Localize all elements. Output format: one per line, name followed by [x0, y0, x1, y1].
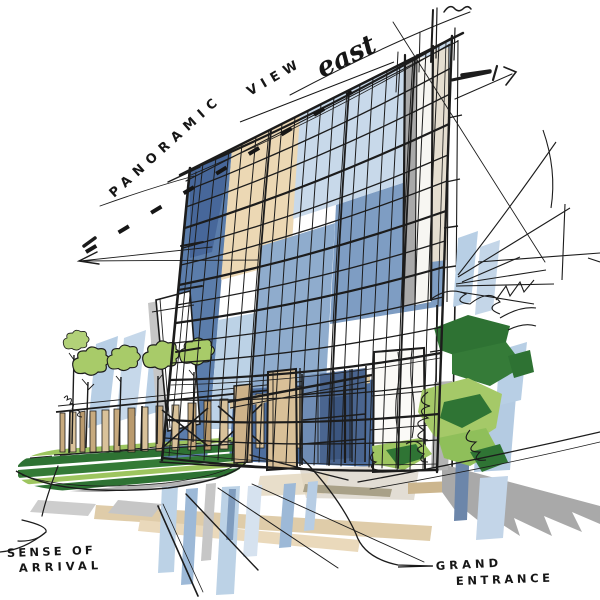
- architectural-sketch: PANORAMIC VIEW east SENSE OF ARRIVAL GRA…: [0, 0, 600, 600]
- annotation-sense-of-arrival: SENSE OF ARRIVAL: [7, 543, 103, 575]
- sense-of-arrival-line2: ARRIVAL: [19, 558, 103, 575]
- grand-entrance-line2: ENTRANCE: [456, 571, 554, 588]
- grand-entrance-leader: [398, 566, 433, 567]
- sense-of-arrival-line1: SENSE OF: [7, 543, 97, 560]
- sketch-svg: PANORAMIC VIEW east SENSE OF ARRIVAL GRA…: [0, 0, 600, 600]
- panoramic-word2: VIEW: [245, 55, 306, 99]
- grand-entrance-line1: GRAND: [435, 556, 502, 573]
- panoramic-script-east: east: [311, 29, 381, 84]
